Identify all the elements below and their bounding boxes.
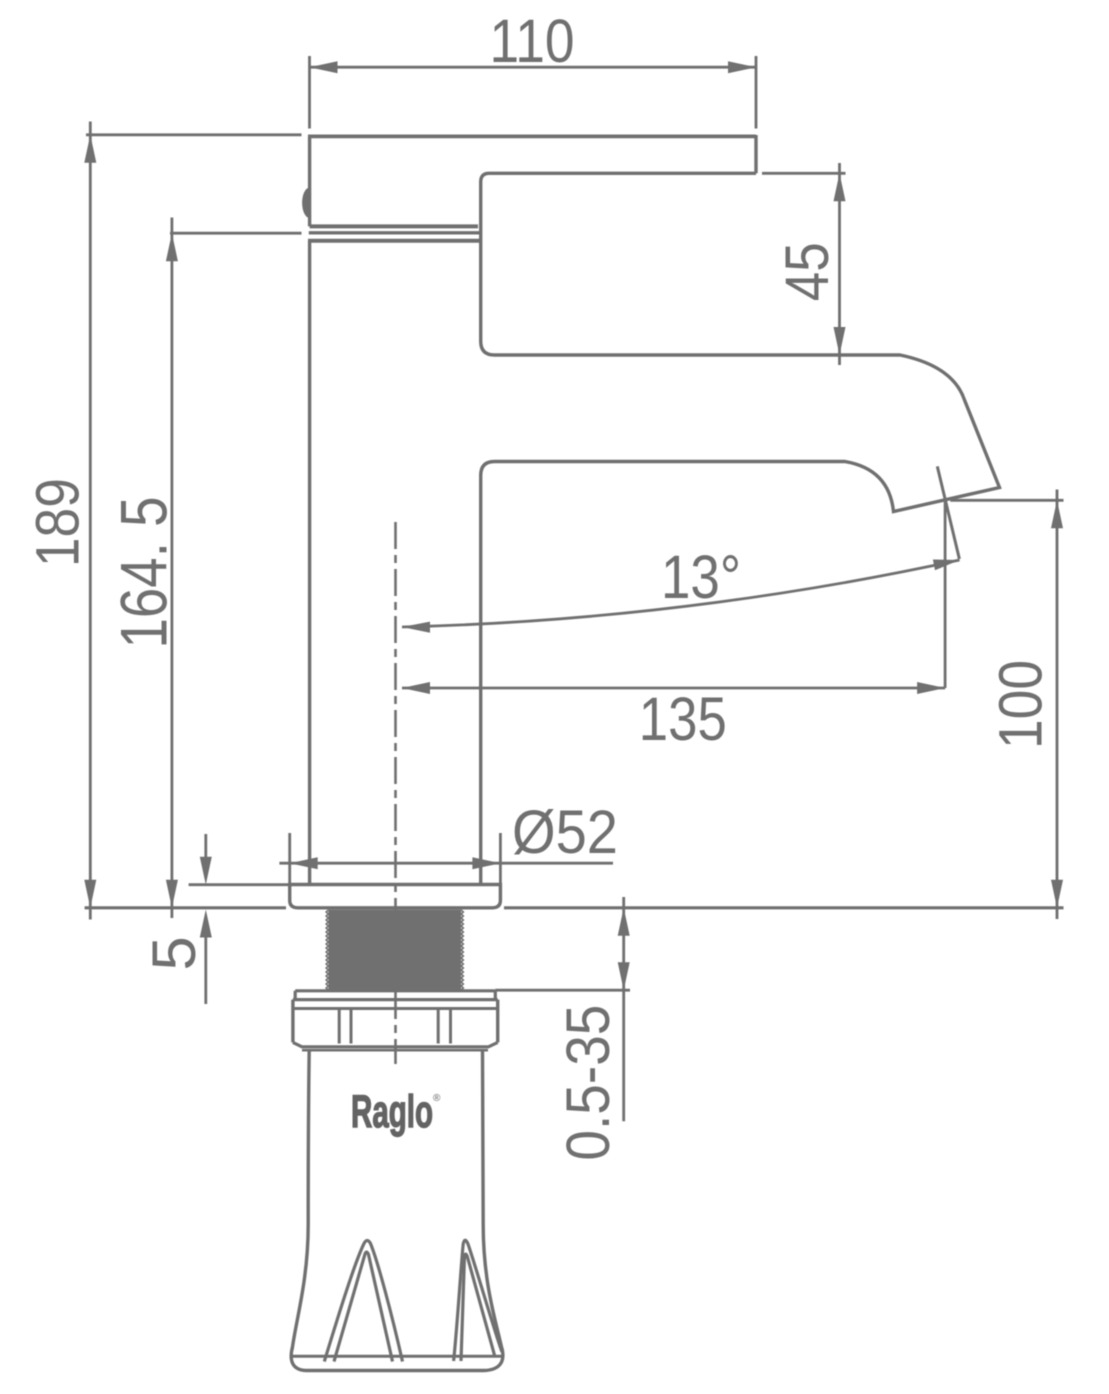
svg-text:13°: 13° — [661, 543, 741, 612]
svg-text:135: 135 — [639, 685, 727, 754]
svg-text:Ø52: Ø52 — [512, 798, 618, 867]
svg-text:164. 5: 164. 5 — [107, 497, 181, 649]
svg-text:5: 5 — [140, 936, 209, 970]
svg-text:0.5-35: 0.5-35 — [554, 1005, 623, 1161]
svg-text:110: 110 — [490, 7, 575, 76]
svg-text:189: 189 — [23, 478, 92, 567]
svg-text:100: 100 — [987, 660, 1056, 749]
svg-text:Raglo: Raglo — [351, 1086, 433, 1137]
svg-text:®: ® — [433, 1093, 441, 1104]
svg-text:45: 45 — [773, 242, 842, 301]
